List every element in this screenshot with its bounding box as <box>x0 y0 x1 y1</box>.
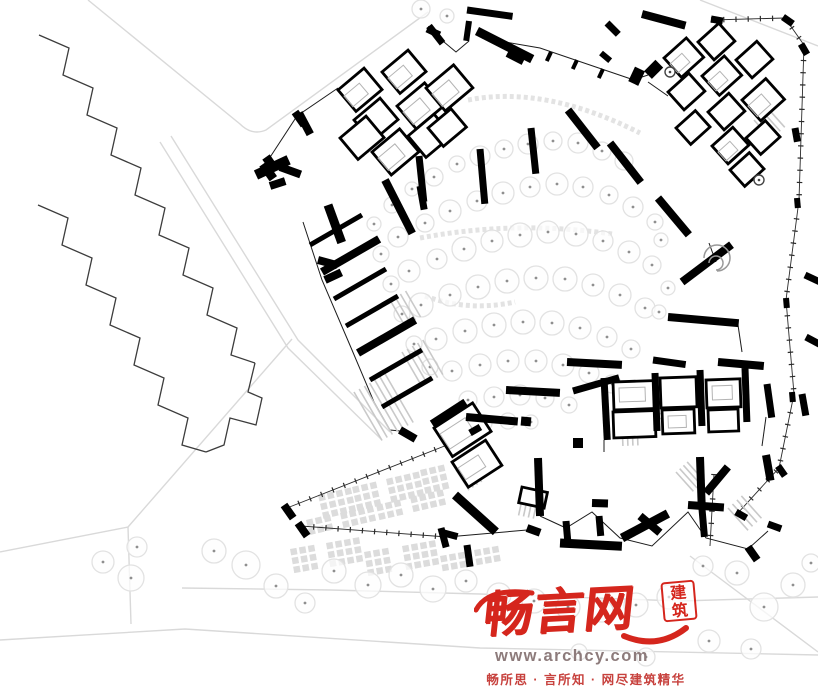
brand-row: 畅言网 建 筑 <box>474 584 716 640</box>
plan-svg <box>0 0 818 674</box>
watermark-logo: 畅言网 建 筑 www.archcy.com 畅所思 · 言所知 · 网尽建筑精… <box>460 584 716 688</box>
thin-wall-lines <box>263 32 768 549</box>
badge-char-2: 筑 <box>664 602 695 623</box>
site-plan-drawing: 畅言网 建 筑 www.archcy.com 畅所思 · 言所知 · 网尽建筑精… <box>0 0 818 674</box>
zigzag-building-outline <box>38 35 262 452</box>
website-url: www.archcy.com <box>464 647 680 666</box>
slogan-text: 畅所思 · 言所知 · 网尽建筑精华 <box>452 669 720 688</box>
brand-badge: 建 筑 <box>660 580 697 623</box>
brand-text: 畅言网 <box>481 584 637 641</box>
